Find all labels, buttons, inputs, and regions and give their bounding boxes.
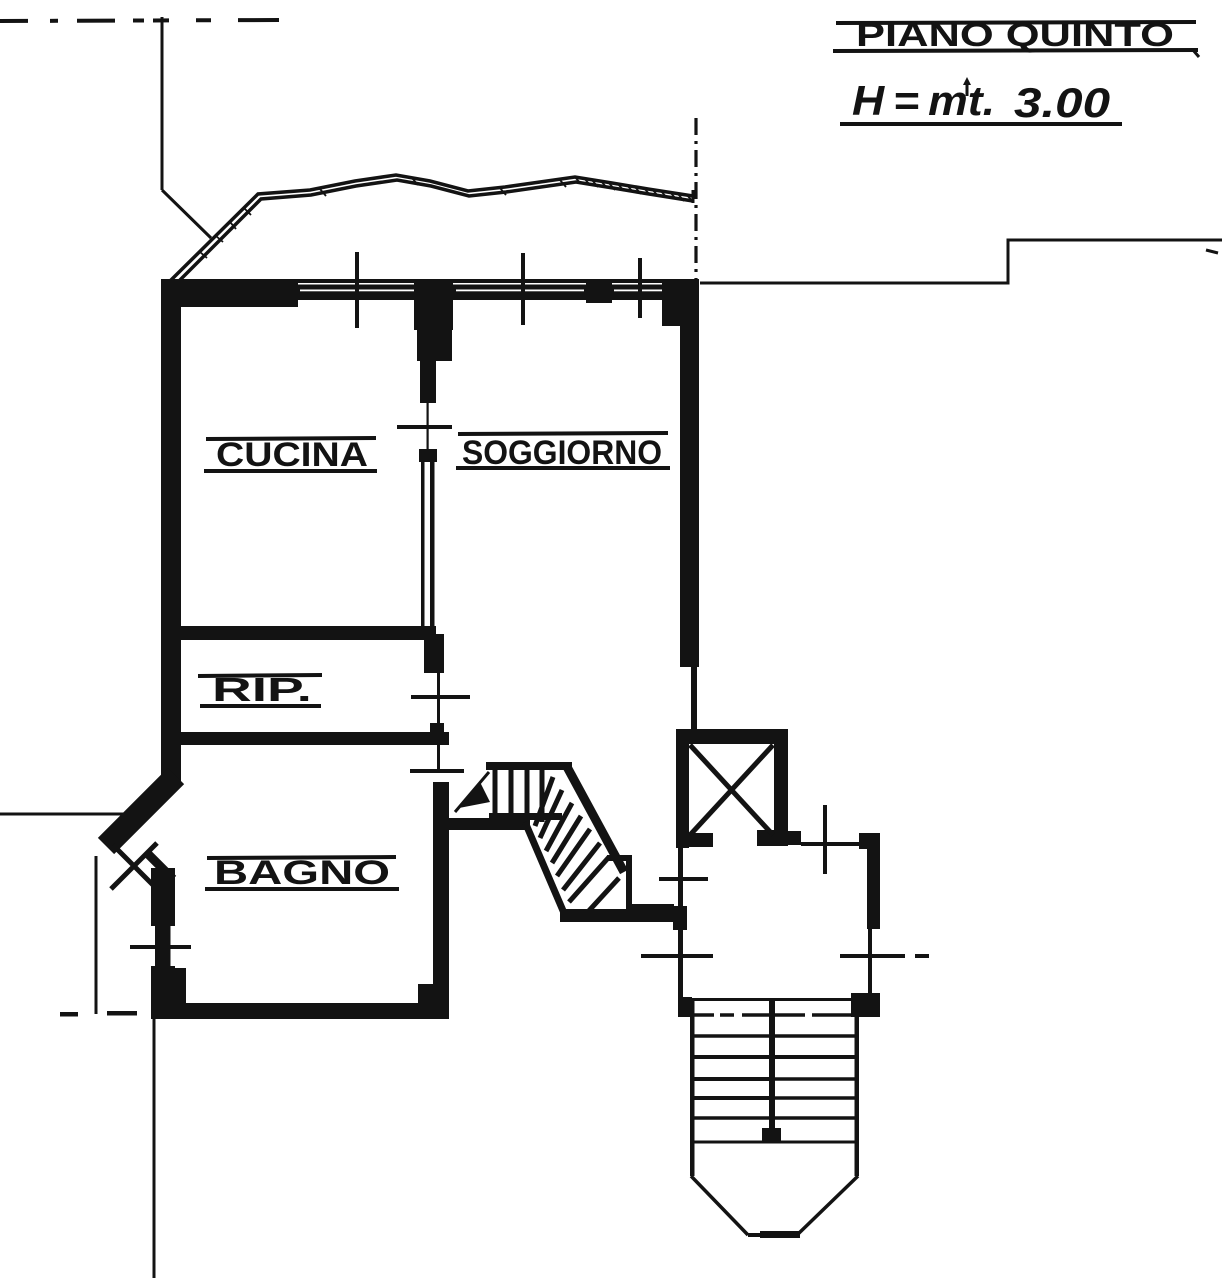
svg-text:CUCINA: CUCINA xyxy=(216,436,368,474)
svg-text:RIP.: RIP. xyxy=(212,671,312,708)
svg-text:BAGNO: BAGNO xyxy=(214,854,390,892)
svg-text:PIANO QUINTO: PIANO QUINTO xyxy=(856,16,1174,53)
svg-text:3.00: 3.00 xyxy=(1014,79,1110,126)
svg-text:H = mt.: H = mt. xyxy=(852,77,995,124)
